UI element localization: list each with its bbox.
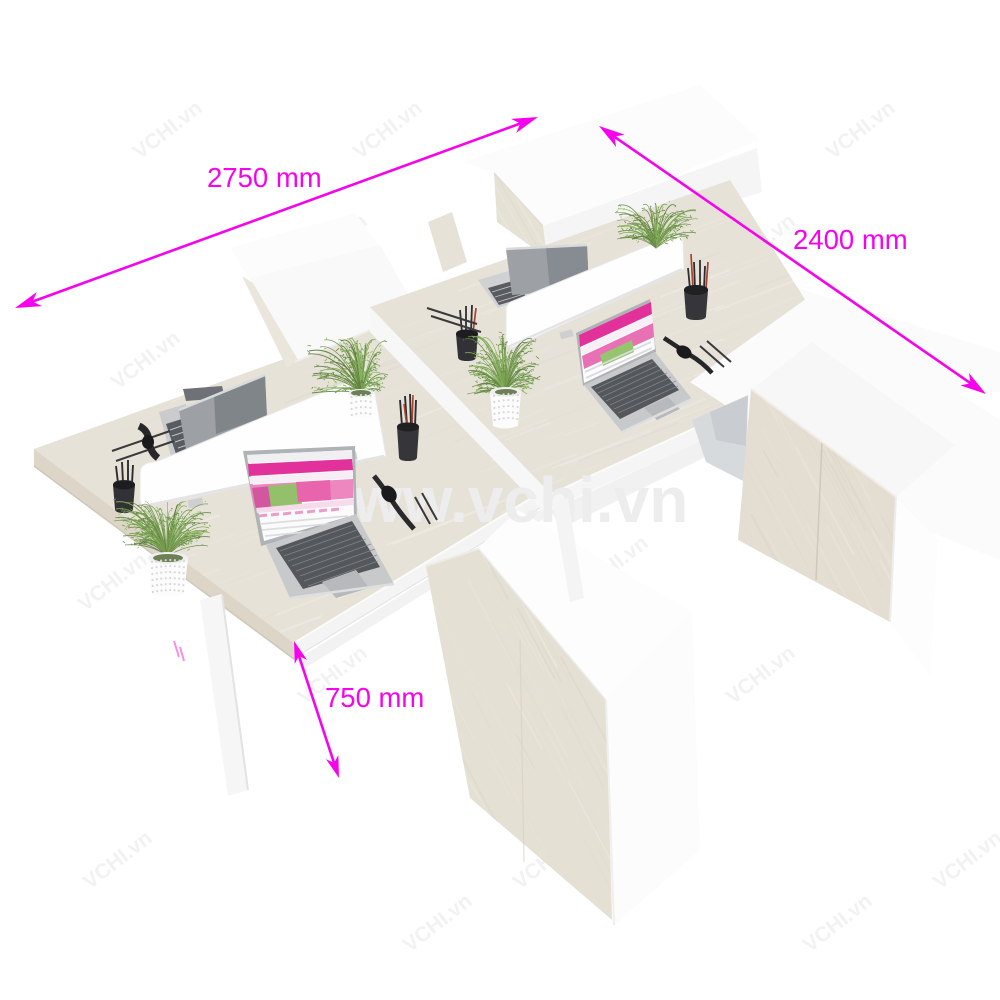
svg-text:2400 mm: 2400 mm bbox=[793, 224, 908, 255]
svg-text:750 mm: 750 mm bbox=[325, 682, 424, 713]
svg-text:2750 mm: 2750 mm bbox=[207, 162, 322, 193]
